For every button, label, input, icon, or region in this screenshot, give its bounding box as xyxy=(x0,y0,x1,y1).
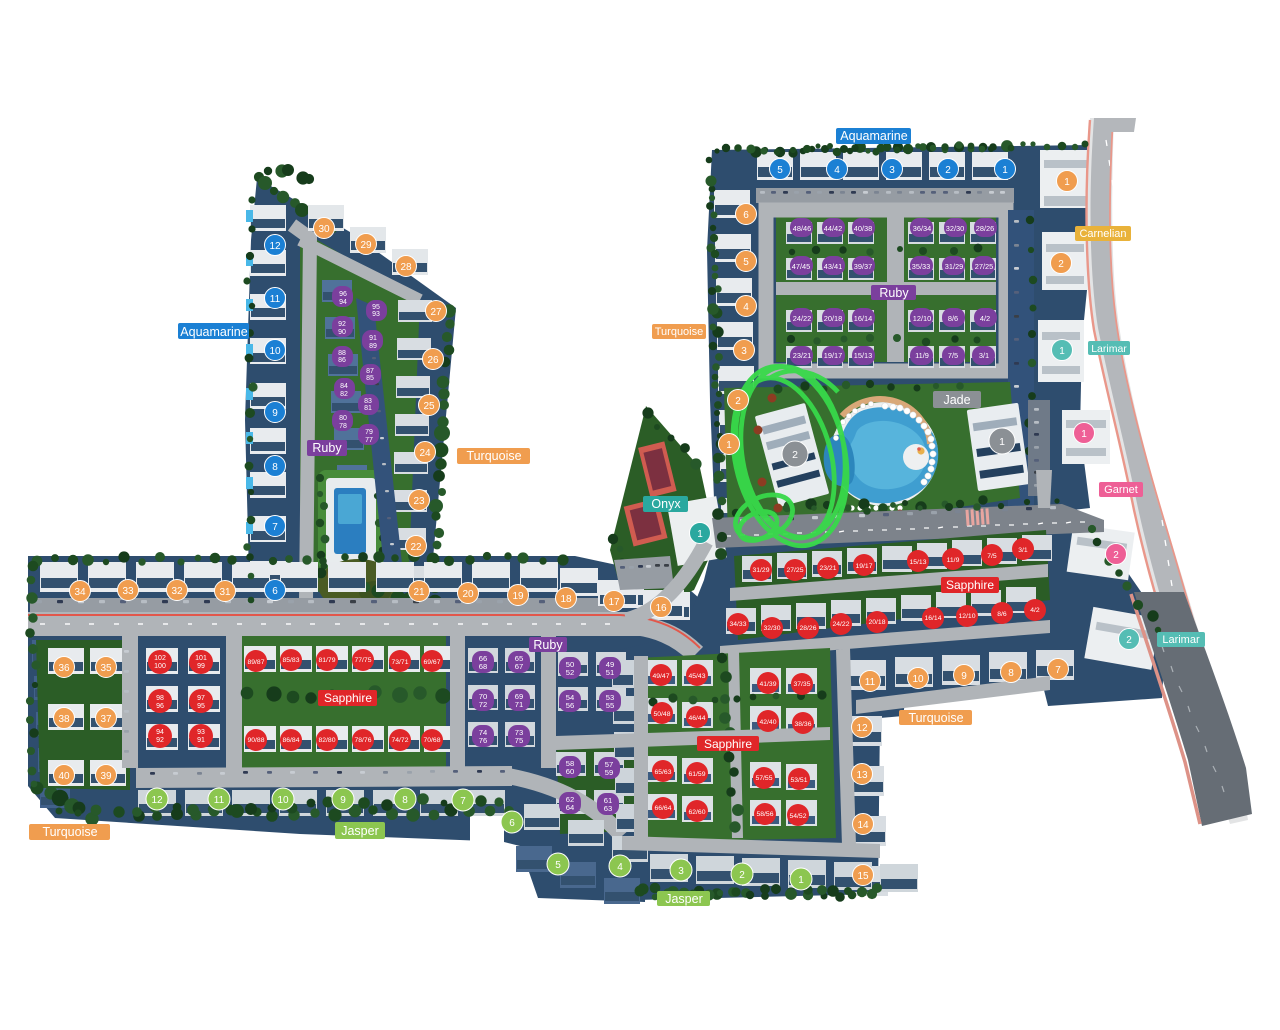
svg-text:8: 8 xyxy=(402,795,408,806)
svg-text:29: 29 xyxy=(360,240,372,251)
svg-text:13: 13 xyxy=(856,770,868,781)
svg-text:16/14: 16/14 xyxy=(854,314,873,323)
svg-text:14: 14 xyxy=(857,820,869,831)
svg-text:9: 9 xyxy=(272,408,278,419)
svg-text:86: 86 xyxy=(338,357,346,364)
svg-text:63: 63 xyxy=(604,804,612,813)
svg-text:37/35: 37/35 xyxy=(793,681,810,688)
svg-text:72: 72 xyxy=(479,700,487,709)
svg-text:81/79: 81/79 xyxy=(318,657,335,664)
svg-text:92: 92 xyxy=(338,321,346,328)
svg-text:80: 80 xyxy=(339,415,347,422)
svg-text:Larimar: Larimar xyxy=(1091,343,1127,355)
svg-text:35: 35 xyxy=(100,663,112,674)
svg-text:35/33: 35/33 xyxy=(912,262,931,271)
svg-text:4: 4 xyxy=(743,302,749,313)
svg-text:4: 4 xyxy=(617,862,623,873)
svg-text:7: 7 xyxy=(460,796,466,807)
svg-text:10: 10 xyxy=(912,674,924,685)
svg-text:44/42: 44/42 xyxy=(824,224,843,233)
svg-text:100: 100 xyxy=(154,663,166,670)
svg-text:82: 82 xyxy=(340,391,348,398)
svg-text:85/83: 85/83 xyxy=(282,657,299,664)
svg-text:12: 12 xyxy=(856,723,868,734)
svg-text:40: 40 xyxy=(58,771,70,782)
svg-text:1: 1 xyxy=(999,436,1005,448)
svg-text:17: 17 xyxy=(608,597,620,608)
svg-text:24: 24 xyxy=(419,448,431,459)
svg-text:3: 3 xyxy=(678,866,684,877)
svg-text:70/68: 70/68 xyxy=(423,737,440,744)
svg-text:93: 93 xyxy=(197,729,205,736)
svg-text:Turquoise: Turquoise xyxy=(908,711,963,725)
svg-text:7/5: 7/5 xyxy=(948,351,958,360)
svg-text:34/33: 34/33 xyxy=(729,621,746,628)
svg-text:7: 7 xyxy=(272,522,278,533)
svg-text:3/1: 3/1 xyxy=(1018,547,1028,554)
svg-text:94: 94 xyxy=(156,729,164,736)
svg-text:91: 91 xyxy=(197,737,205,744)
svg-text:43/41: 43/41 xyxy=(824,262,843,271)
svg-text:15/13: 15/13 xyxy=(854,351,873,360)
svg-text:50/48: 50/48 xyxy=(653,711,670,718)
svg-text:95: 95 xyxy=(197,703,205,710)
svg-text:15: 15 xyxy=(857,871,869,882)
svg-text:9: 9 xyxy=(961,671,967,682)
svg-text:48/46: 48/46 xyxy=(793,224,812,233)
svg-text:39/37: 39/37 xyxy=(854,262,873,271)
svg-text:12: 12 xyxy=(269,241,281,252)
svg-text:9: 9 xyxy=(340,795,346,806)
svg-text:24/22: 24/22 xyxy=(832,621,849,628)
svg-text:Carnelian: Carnelian xyxy=(1079,228,1126,240)
svg-text:4/2: 4/2 xyxy=(1030,607,1040,614)
svg-text:83: 83 xyxy=(364,398,372,405)
svg-text:10: 10 xyxy=(277,795,289,806)
svg-text:98: 98 xyxy=(156,695,164,702)
svg-text:69/67: 69/67 xyxy=(423,659,440,666)
svg-text:Turquoise: Turquoise xyxy=(42,825,97,839)
svg-text:12/10: 12/10 xyxy=(913,314,932,323)
svg-text:4/2: 4/2 xyxy=(980,314,990,323)
svg-text:89/87: 89/87 xyxy=(247,659,264,666)
svg-text:89: 89 xyxy=(369,343,377,350)
svg-text:78/76: 78/76 xyxy=(354,737,371,744)
svg-text:1: 1 xyxy=(1002,165,1008,176)
svg-text:19/17: 19/17 xyxy=(824,351,843,360)
svg-text:12: 12 xyxy=(151,795,163,806)
svg-text:2: 2 xyxy=(735,396,741,407)
svg-text:Jade: Jade xyxy=(943,393,970,407)
svg-text:64: 64 xyxy=(566,803,574,812)
svg-text:77: 77 xyxy=(365,437,373,444)
svg-text:5: 5 xyxy=(743,257,749,268)
svg-text:11: 11 xyxy=(270,294,281,305)
svg-text:102: 102 xyxy=(154,655,166,662)
svg-text:10: 10 xyxy=(269,346,281,357)
svg-text:31/29: 31/29 xyxy=(945,262,964,271)
svg-text:71: 71 xyxy=(515,700,523,709)
svg-text:52: 52 xyxy=(566,668,574,677)
svg-text:73/71: 73/71 xyxy=(391,659,408,666)
svg-text:7: 7 xyxy=(1055,665,1061,676)
svg-text:60: 60 xyxy=(566,767,574,776)
svg-text:90/88: 90/88 xyxy=(247,737,264,744)
svg-text:56: 56 xyxy=(566,701,574,710)
svg-text:1: 1 xyxy=(697,529,703,540)
svg-text:68: 68 xyxy=(479,662,487,671)
svg-text:5: 5 xyxy=(555,860,561,871)
svg-text:94: 94 xyxy=(339,299,347,306)
svg-text:Sapphire: Sapphire xyxy=(324,691,372,705)
svg-text:58/56: 58/56 xyxy=(756,811,773,818)
svg-text:28/26: 28/26 xyxy=(976,224,995,233)
svg-text:11: 11 xyxy=(214,795,225,806)
svg-text:6: 6 xyxy=(743,210,749,221)
svg-text:59: 59 xyxy=(605,768,613,777)
svg-text:8: 8 xyxy=(1008,668,1014,679)
svg-text:3: 3 xyxy=(889,165,895,176)
svg-text:65/63: 65/63 xyxy=(654,769,671,776)
svg-text:42/40: 42/40 xyxy=(759,719,776,726)
svg-text:79: 79 xyxy=(365,429,373,436)
svg-text:84: 84 xyxy=(340,383,348,390)
svg-text:27: 27 xyxy=(430,307,442,318)
svg-text:55: 55 xyxy=(606,701,614,710)
svg-text:2: 2 xyxy=(792,449,798,461)
svg-text:1: 1 xyxy=(1081,429,1087,440)
svg-text:31: 31 xyxy=(219,587,231,598)
svg-text:11/9: 11/9 xyxy=(947,557,960,564)
svg-text:54/52: 54/52 xyxy=(789,813,806,820)
svg-text:1: 1 xyxy=(1059,346,1065,357)
svg-text:96: 96 xyxy=(339,291,347,298)
svg-text:76: 76 xyxy=(479,736,487,745)
svg-text:16/14: 16/14 xyxy=(924,615,941,622)
svg-text:Garnet: Garnet xyxy=(1104,484,1138,496)
svg-text:5: 5 xyxy=(777,165,783,176)
svg-text:Ruby: Ruby xyxy=(533,638,563,652)
svg-text:27/25: 27/25 xyxy=(786,567,803,574)
svg-text:8/6: 8/6 xyxy=(948,314,958,323)
svg-text:2: 2 xyxy=(1113,550,1119,561)
svg-text:97: 97 xyxy=(197,695,205,702)
svg-text:2: 2 xyxy=(1126,635,1132,646)
svg-text:92: 92 xyxy=(156,737,164,744)
svg-text:28: 28 xyxy=(400,262,412,273)
svg-text:24/22: 24/22 xyxy=(793,314,812,323)
svg-text:3/1: 3/1 xyxy=(979,351,989,360)
svg-text:81: 81 xyxy=(364,405,372,412)
svg-text:85: 85 xyxy=(366,375,374,382)
svg-text:7/5: 7/5 xyxy=(987,553,997,560)
svg-text:34: 34 xyxy=(74,587,86,598)
svg-text:Turquoise: Turquoise xyxy=(655,326,704,338)
svg-text:31/29: 31/29 xyxy=(752,567,769,574)
svg-text:88: 88 xyxy=(338,350,346,357)
svg-text:46/44: 46/44 xyxy=(688,715,705,722)
svg-text:22: 22 xyxy=(410,542,422,553)
svg-text:78: 78 xyxy=(339,423,347,430)
svg-text:Onyx: Onyx xyxy=(651,497,681,511)
svg-text:26: 26 xyxy=(427,355,439,366)
svg-text:57/55: 57/55 xyxy=(755,775,772,782)
svg-text:23/21: 23/21 xyxy=(793,351,812,360)
svg-text:75: 75 xyxy=(515,736,523,745)
svg-text:74/72: 74/72 xyxy=(391,737,408,744)
svg-text:2: 2 xyxy=(945,165,951,176)
svg-text:67: 67 xyxy=(515,662,523,671)
svg-text:15/13: 15/13 xyxy=(909,559,926,566)
svg-text:25: 25 xyxy=(423,401,435,412)
svg-text:1: 1 xyxy=(1064,177,1070,188)
svg-text:28/26: 28/26 xyxy=(799,625,816,632)
svg-text:21: 21 xyxy=(413,587,425,598)
svg-text:61/59: 61/59 xyxy=(688,771,705,778)
svg-text:45/43: 45/43 xyxy=(688,673,705,680)
svg-text:95: 95 xyxy=(372,304,380,311)
svg-text:41/39: 41/39 xyxy=(759,681,776,688)
svg-text:82/80: 82/80 xyxy=(318,737,335,744)
svg-text:12/10: 12/10 xyxy=(958,613,975,620)
svg-text:Ruby: Ruby xyxy=(879,286,909,300)
svg-text:36: 36 xyxy=(58,663,70,674)
svg-text:2: 2 xyxy=(739,870,745,881)
svg-text:1: 1 xyxy=(726,440,732,451)
svg-text:90: 90 xyxy=(338,329,346,336)
svg-text:Ruby: Ruby xyxy=(312,441,342,455)
svg-text:87: 87 xyxy=(366,368,374,375)
svg-text:2: 2 xyxy=(1058,259,1064,270)
svg-text:49/47: 49/47 xyxy=(652,673,669,680)
svg-text:19: 19 xyxy=(512,591,524,602)
svg-text:38/36: 38/36 xyxy=(794,721,811,728)
svg-text:47/45: 47/45 xyxy=(792,262,811,271)
svg-text:30: 30 xyxy=(318,224,330,235)
svg-text:66/64: 66/64 xyxy=(654,805,671,812)
svg-text:1: 1 xyxy=(798,875,804,886)
svg-text:4: 4 xyxy=(834,165,840,176)
svg-text:11/9: 11/9 xyxy=(915,351,929,360)
svg-text:Larimar: Larimar xyxy=(1162,634,1200,646)
svg-text:Aquamarine: Aquamarine xyxy=(180,325,247,339)
svg-text:Sapphire: Sapphire xyxy=(704,737,752,751)
svg-text:32: 32 xyxy=(171,586,183,597)
svg-text:16: 16 xyxy=(655,603,667,614)
svg-text:Turquoise: Turquoise xyxy=(466,449,521,463)
svg-text:32/30: 32/30 xyxy=(946,224,965,233)
svg-text:3: 3 xyxy=(741,346,747,357)
svg-text:18: 18 xyxy=(560,594,572,605)
svg-text:6: 6 xyxy=(272,586,278,597)
svg-text:20: 20 xyxy=(462,589,474,600)
svg-text:62/60: 62/60 xyxy=(688,809,705,816)
svg-text:23/21: 23/21 xyxy=(819,565,836,572)
svg-text:40/38: 40/38 xyxy=(854,224,873,233)
svg-text:99: 99 xyxy=(197,663,205,670)
svg-text:93: 93 xyxy=(372,311,380,318)
svg-text:39: 39 xyxy=(100,771,112,782)
svg-text:Jasper: Jasper xyxy=(665,892,703,906)
svg-text:19/17: 19/17 xyxy=(855,563,872,570)
svg-text:37: 37 xyxy=(100,714,112,725)
svg-text:Sapphire: Sapphire xyxy=(946,578,994,592)
svg-text:Jasper: Jasper xyxy=(341,824,379,838)
svg-text:36/34: 36/34 xyxy=(913,224,932,233)
svg-text:96: 96 xyxy=(156,703,164,710)
svg-text:38: 38 xyxy=(58,714,70,725)
svg-text:8/6: 8/6 xyxy=(997,611,1007,618)
svg-text:8: 8 xyxy=(272,462,278,473)
svg-text:101: 101 xyxy=(195,655,207,662)
svg-text:6: 6 xyxy=(509,818,515,829)
svg-text:11: 11 xyxy=(865,677,876,688)
svg-text:20/18: 20/18 xyxy=(824,314,843,323)
svg-text:Aquamarine: Aquamarine xyxy=(840,129,907,143)
svg-text:33: 33 xyxy=(122,586,134,597)
svg-text:77/75: 77/75 xyxy=(354,657,371,664)
svg-text:27/25: 27/25 xyxy=(975,262,994,271)
svg-text:32/30: 32/30 xyxy=(763,625,780,632)
svg-text:51: 51 xyxy=(606,668,614,677)
svg-text:86/84: 86/84 xyxy=(282,737,299,744)
svg-text:53/51: 53/51 xyxy=(790,777,807,784)
svg-text:91: 91 xyxy=(369,335,377,342)
svg-text:23: 23 xyxy=(413,496,425,507)
svg-text:20/18: 20/18 xyxy=(868,619,885,626)
